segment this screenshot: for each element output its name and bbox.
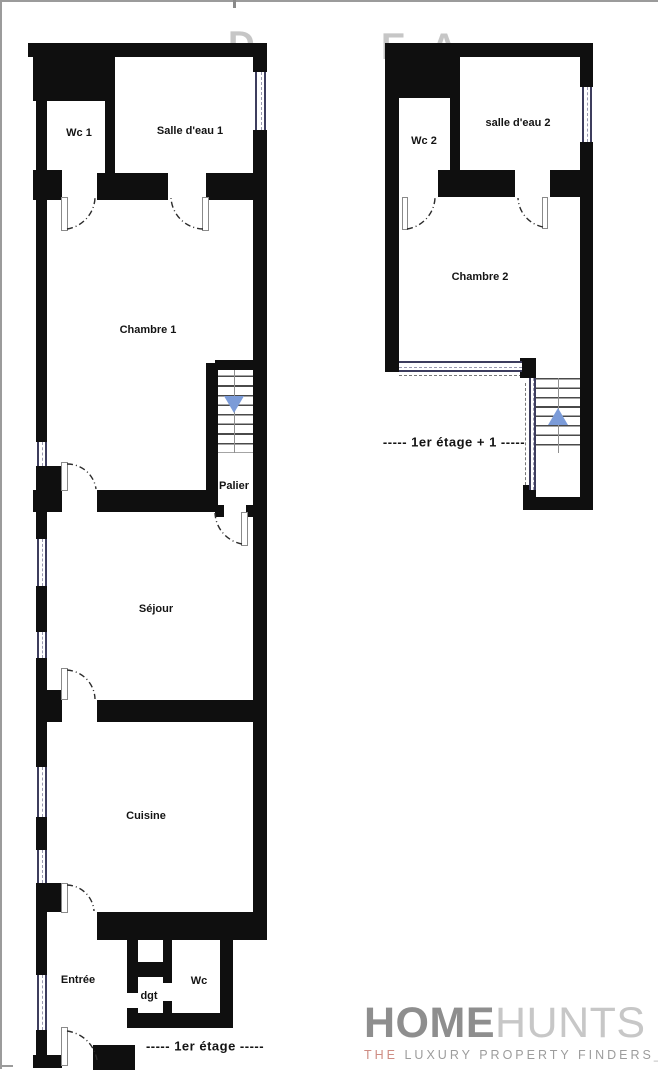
door-leaf bbox=[542, 197, 548, 229]
window bbox=[37, 850, 47, 883]
window bbox=[529, 378, 536, 490]
wall bbox=[36, 1030, 47, 1057]
wall bbox=[36, 512, 47, 539]
wall bbox=[36, 586, 47, 632]
door-arc bbox=[67, 885, 94, 911]
wall bbox=[36, 817, 47, 850]
window bbox=[37, 632, 47, 658]
door-leaf bbox=[61, 883, 68, 913]
wall bbox=[215, 360, 267, 370]
room-label-chambre1: Chambre 1 bbox=[120, 324, 177, 336]
wall bbox=[163, 940, 172, 983]
window bbox=[37, 539, 47, 586]
image-border-top bbox=[0, 0, 658, 2]
wall bbox=[36, 912, 47, 940]
room-label-salle-deau-1: Salle d'eau 1 bbox=[157, 125, 223, 137]
wall bbox=[33, 490, 62, 512]
wall bbox=[97, 173, 168, 200]
floor2-caption: ----- 1er étage + 1 ----- bbox=[383, 435, 525, 450]
logo-home-text: HOME bbox=[364, 999, 495, 1047]
door-arc bbox=[67, 198, 95, 229]
wall bbox=[127, 1008, 138, 1028]
logo-tagline: THE LUXURY PROPERTY FINDERS_ bbox=[364, 1049, 658, 1062]
wall bbox=[130, 1013, 233, 1028]
wall bbox=[580, 57, 593, 87]
door-arc bbox=[171, 198, 203, 229]
wall bbox=[36, 883, 62, 912]
door-leaf bbox=[61, 462, 68, 491]
window bbox=[37, 442, 47, 466]
logo-tagline-the: THE bbox=[364, 1048, 398, 1062]
room-label-palier: Palier bbox=[219, 480, 249, 492]
wall bbox=[580, 142, 593, 510]
door-arc bbox=[67, 464, 96, 489]
room-label-sejour: Séjour bbox=[139, 603, 173, 615]
window bbox=[582, 87, 592, 142]
window bbox=[399, 361, 522, 372]
wall bbox=[33, 1055, 62, 1068]
door-leaf bbox=[202, 197, 209, 231]
door-leaf bbox=[61, 1027, 68, 1066]
room-label-dgt: dgt bbox=[140, 990, 157, 1002]
window-dash bbox=[525, 383, 526, 490]
image-border-left bbox=[0, 0, 2, 1069]
wall bbox=[36, 466, 62, 490]
room-label-entree: Entrée bbox=[61, 974, 95, 986]
room-label-chambre2: Chambre 2 bbox=[452, 271, 509, 283]
stairs-down-arrow-icon bbox=[224, 396, 244, 413]
wall bbox=[105, 53, 115, 173]
wall bbox=[97, 700, 253, 722]
room-label-wc1: Wc 1 bbox=[66, 127, 92, 139]
wall bbox=[36, 658, 47, 690]
wall bbox=[529, 497, 593, 510]
logo-hunts-text: HUNTS bbox=[495, 999, 646, 1047]
wall bbox=[36, 940, 47, 975]
room-label-salle-deau-2: salle d'eau 2 bbox=[486, 117, 551, 129]
wall bbox=[163, 1001, 172, 1013]
floor1-caption: ----- 1er étage ----- bbox=[146, 1039, 264, 1054]
wall bbox=[233, 928, 267, 940]
window bbox=[37, 767, 47, 817]
door-leaf bbox=[61, 668, 68, 700]
door-leaf bbox=[402, 197, 408, 230]
wall bbox=[33, 170, 62, 200]
wall bbox=[520, 358, 536, 378]
room-label-wc2: Wc 2 bbox=[411, 135, 437, 147]
wall bbox=[93, 1045, 135, 1070]
wall bbox=[253, 130, 267, 940]
logo-underscore: _ bbox=[654, 1048, 658, 1062]
image-top-tick bbox=[233, 0, 236, 8]
wall bbox=[97, 490, 218, 512]
door-leaf bbox=[241, 512, 248, 546]
wall bbox=[550, 170, 583, 197]
door-arc bbox=[67, 670, 95, 699]
window bbox=[37, 975, 47, 1030]
door-arc bbox=[215, 513, 242, 544]
homehunts-logo: HOMEHUNTS THE LUXURY PROPERTY FINDERS_ bbox=[364, 1002, 658, 1062]
wall bbox=[385, 53, 399, 372]
room-label-wc: Wc bbox=[191, 975, 208, 987]
wall bbox=[253, 57, 267, 72]
wall bbox=[450, 53, 460, 170]
door-arc bbox=[407, 198, 435, 229]
room-label-cuisine: Cuisine bbox=[126, 810, 166, 822]
wall bbox=[390, 53, 453, 98]
wall bbox=[36, 690, 62, 722]
wall bbox=[460, 170, 515, 197]
image-border-corner-tick bbox=[2, 1065, 13, 1067]
wall bbox=[36, 722, 47, 767]
logo-wordmark: HOMEHUNTS bbox=[364, 1002, 658, 1045]
logo-tagline-rest: LUXURY PROPERTY FINDERS bbox=[404, 1048, 653, 1062]
window-dash bbox=[399, 375, 522, 376]
wall bbox=[438, 170, 460, 197]
stairs-up-arrow-icon bbox=[548, 408, 568, 425]
door-arc bbox=[518, 198, 543, 227]
floor-plan-canvas: D E A bbox=[0, 0, 658, 1080]
wall bbox=[36, 57, 47, 442]
window bbox=[255, 72, 266, 130]
door-leaf bbox=[61, 197, 68, 231]
